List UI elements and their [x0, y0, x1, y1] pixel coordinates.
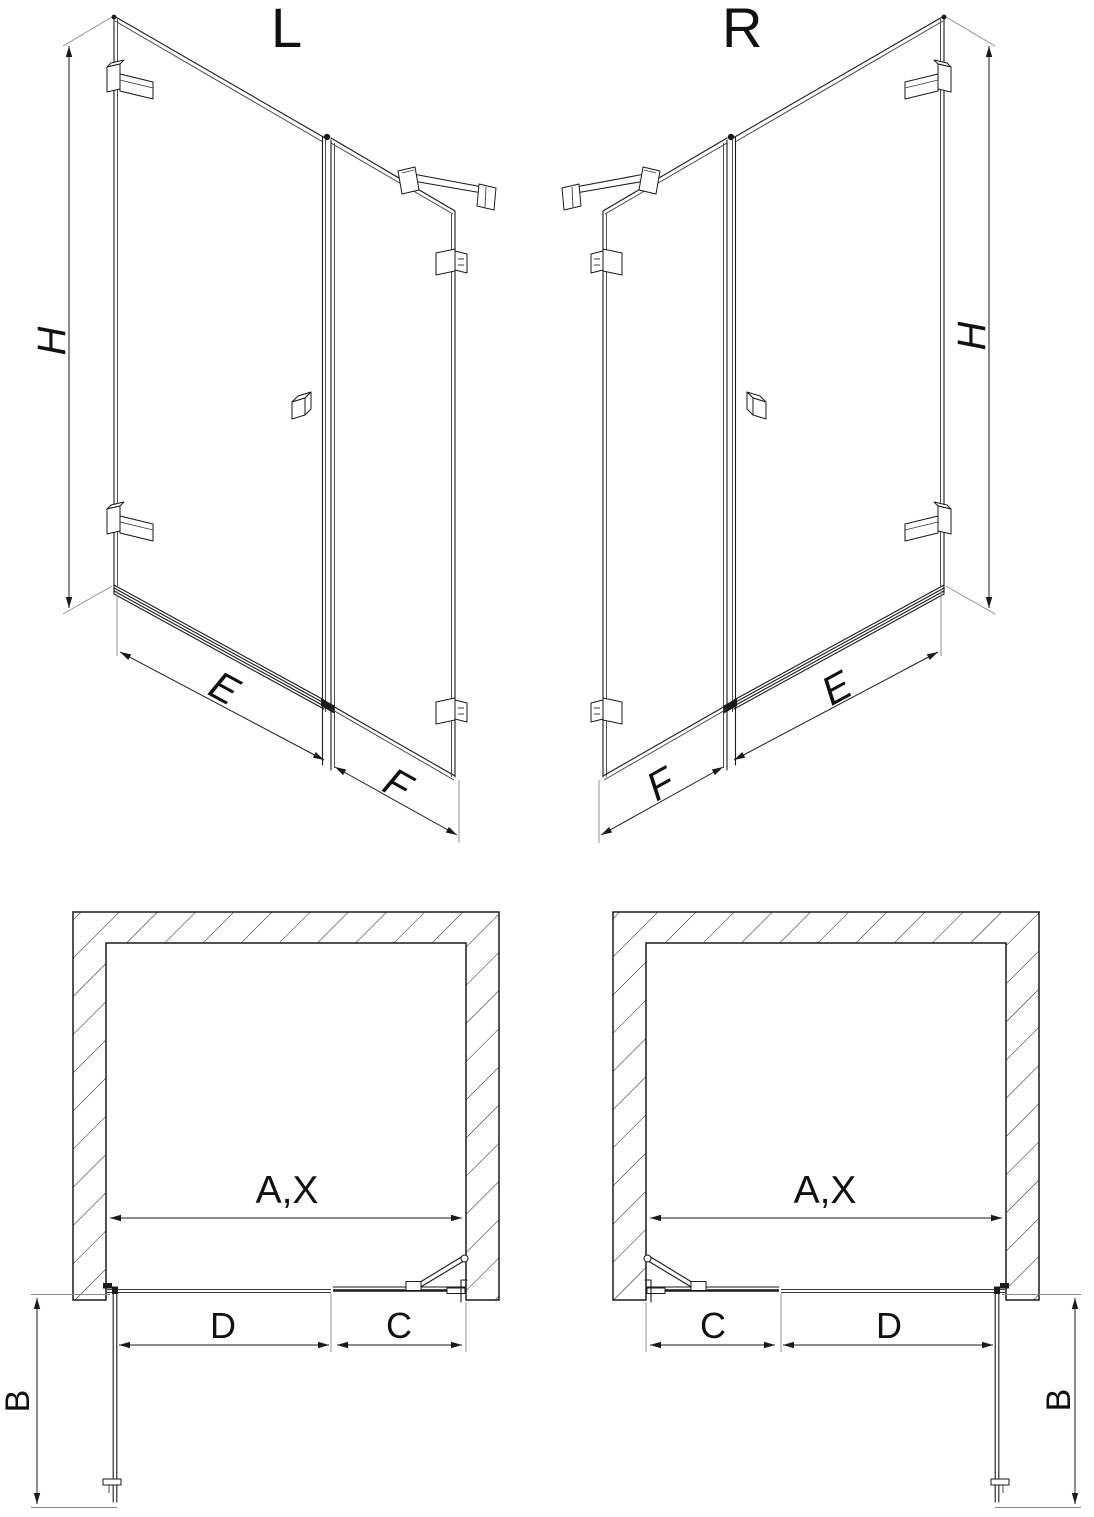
- dim-label-d-right: D: [876, 1305, 902, 1346]
- dim-label-height-left: H: [30, 326, 74, 355]
- variant-label-right: R: [722, 0, 762, 59]
- dim-label-opening-right: A,X: [794, 1169, 857, 1212]
- variant-label-left: L: [271, 0, 302, 59]
- dim-label-b-left: B: [0, 1390, 37, 1413]
- diagram-canvas: L R H H E F E F A,X A,X D C C D B B: [0, 0, 1094, 1517]
- shower-door-technical-diagram: L R H H E F E F A,X A,X D C C D B B: [0, 0, 1094, 1517]
- dim-label-height-right: H: [950, 321, 994, 350]
- dim-label-opening-left: A,X: [256, 1169, 319, 1212]
- dim-label-d-left: D: [210, 1305, 236, 1346]
- dim-label-c-left: C: [386, 1305, 412, 1346]
- dim-label-c-right: C: [700, 1305, 726, 1346]
- dim-label-b-right: B: [1040, 1389, 1078, 1412]
